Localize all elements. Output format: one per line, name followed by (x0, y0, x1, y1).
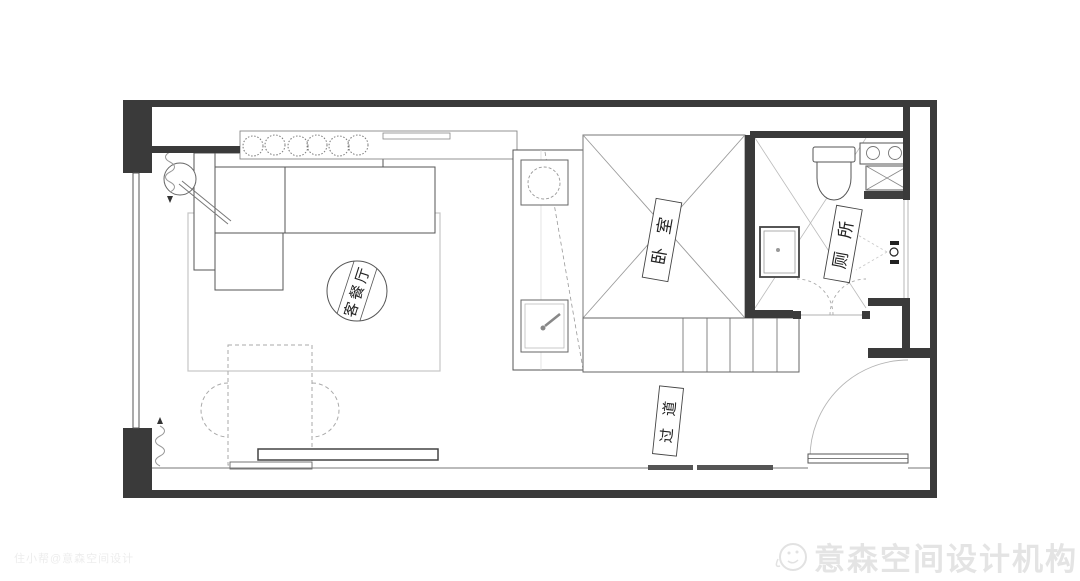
chair-icon (312, 383, 339, 437)
floor-plan-page: 客餐厅 卧室 厕所 过道 意森空间设计机构 住小帮@意森空间设计 (0, 0, 1080, 581)
sofa (194, 153, 435, 290)
fold-out-table-and-chairs (201, 345, 339, 465)
toilet-icon (813, 147, 855, 200)
brand-watermark-text: 意森空间设计机构 (814, 542, 1078, 577)
smiley-face-logo-icon (776, 544, 806, 570)
room-label-corridor: 过道 (653, 386, 684, 456)
chair-icon (201, 383, 228, 437)
floor-plan-drawing: 客餐厅 卧室 厕所 过道 意森空间设计机构 住小帮@意森空间设计 (0, 0, 1080, 581)
kitchen-counter (513, 150, 583, 370)
left-window (133, 173, 139, 428)
planter-row (240, 131, 517, 159)
photo-credit-watermark: 住小帮@意森空间设计 (14, 551, 134, 565)
bathroom-sink-icon (760, 227, 799, 277)
stairs-icon (583, 318, 799, 372)
shower-icon (856, 234, 899, 270)
room-label-toilet: 厕所 (824, 205, 862, 282)
brand-watermark: 意森空间设计机构 (776, 542, 1078, 577)
room-label-living-dining: 客餐厅 (327, 261, 387, 321)
kitchen-sink-icon (521, 300, 568, 352)
folding-door-icon (797, 279, 866, 315)
basin-vanity-icon (860, 143, 908, 164)
curtain-icon (156, 152, 175, 466)
tv-console-icon (230, 449, 438, 469)
entry-door-icon (808, 360, 908, 463)
washing-machine-icon (521, 160, 568, 205)
